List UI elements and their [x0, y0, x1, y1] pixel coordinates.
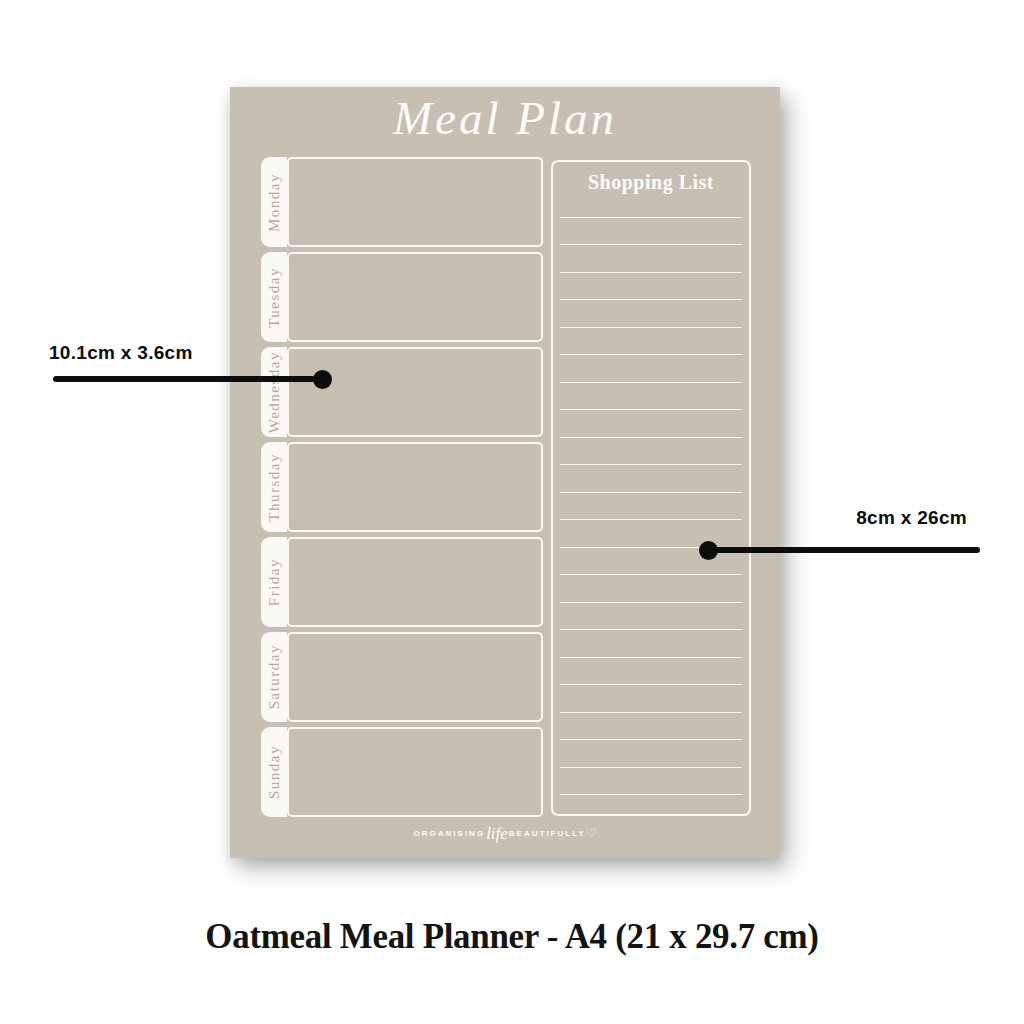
heart-icon: ♡ [586, 826, 597, 840]
pointer-dot [699, 541, 718, 560]
day-box [287, 252, 543, 342]
day-label: Monday [266, 173, 283, 232]
day-label: Saturday [266, 644, 283, 709]
planner-page: Meal Plan Monday Tuesday Wednesday [230, 87, 780, 858]
day-tab: Friday [261, 537, 287, 627]
day-box [287, 347, 543, 437]
shopping-line [560, 410, 742, 438]
shopping-list-dimension-label: 8cm x 26cm [856, 507, 967, 529]
day-label: Friday [266, 558, 283, 606]
day-tab: Monday [261, 157, 287, 247]
day-rows: Monday Tuesday Wednesday Thursday [261, 157, 543, 822]
shopping-line [560, 658, 742, 686]
shopping-line [560, 575, 742, 603]
day-row-tuesday: Tuesday [261, 252, 543, 342]
shopping-line [560, 300, 742, 328]
shopping-line [560, 190, 742, 218]
day-label: Tuesday [266, 267, 283, 328]
day-label: Wednesday [266, 351, 283, 433]
day-tab: Saturday [261, 632, 287, 722]
shopping-line [560, 355, 742, 383]
pointer-dot [313, 370, 332, 389]
shopping-list-panel: Shopping List [551, 160, 751, 816]
day-row-wednesday: Wednesday [261, 347, 543, 437]
day-box [287, 442, 543, 532]
day-tab: Thursday [261, 442, 287, 532]
pointer-line [53, 376, 315, 382]
brand-logo: ORGANISINGlifeBEAUTIFULLY♡ [230, 824, 780, 844]
shopping-line [560, 465, 742, 493]
day-row-saturday: Saturday [261, 632, 543, 722]
brand-word-1: ORGANISING [414, 829, 486, 838]
day-box-dimension-label: 10.1cm x 3.6cm [49, 342, 193, 364]
shopping-line [560, 493, 742, 521]
shopping-line [560, 740, 742, 768]
shopping-line [560, 218, 742, 246]
brand-script-word: life [486, 824, 508, 843]
shopping-line [560, 685, 742, 713]
shopping-lines [560, 190, 742, 795]
product-caption: Oatmeal Meal Planner - A4 (21 x 29.7 cm) [15, 915, 1008, 957]
shopping-line [560, 630, 742, 658]
day-row-thursday: Thursday [261, 442, 543, 532]
shopping-line [560, 273, 742, 301]
day-row-sunday: Sunday [261, 727, 543, 817]
brand-word-2: BEAUTIFULLY [509, 829, 586, 838]
day-box [287, 727, 543, 817]
day-row-friday: Friday [261, 537, 543, 627]
shopping-line [560, 603, 742, 631]
shopping-line [560, 245, 742, 273]
day-box [287, 632, 543, 722]
day-tab: Wednesday [261, 347, 287, 437]
day-label: Thursday [266, 453, 283, 522]
shopping-line [560, 383, 742, 411]
shopping-line [560, 768, 742, 796]
day-tab: Tuesday [261, 252, 287, 342]
day-label: Sunday [266, 745, 283, 799]
shopping-line [560, 328, 742, 356]
day-box [287, 537, 543, 627]
product-image: Meal Plan Monday Tuesday Wednesday [0, 0, 1024, 1024]
day-row-monday: Monday [261, 157, 543, 247]
day-box [287, 157, 543, 247]
shopping-line [560, 713, 742, 741]
planner-title: Meal Plan [230, 91, 780, 145]
day-tab: Sunday [261, 727, 287, 817]
pointer-line [708, 547, 980, 553]
shopping-line [560, 438, 742, 466]
